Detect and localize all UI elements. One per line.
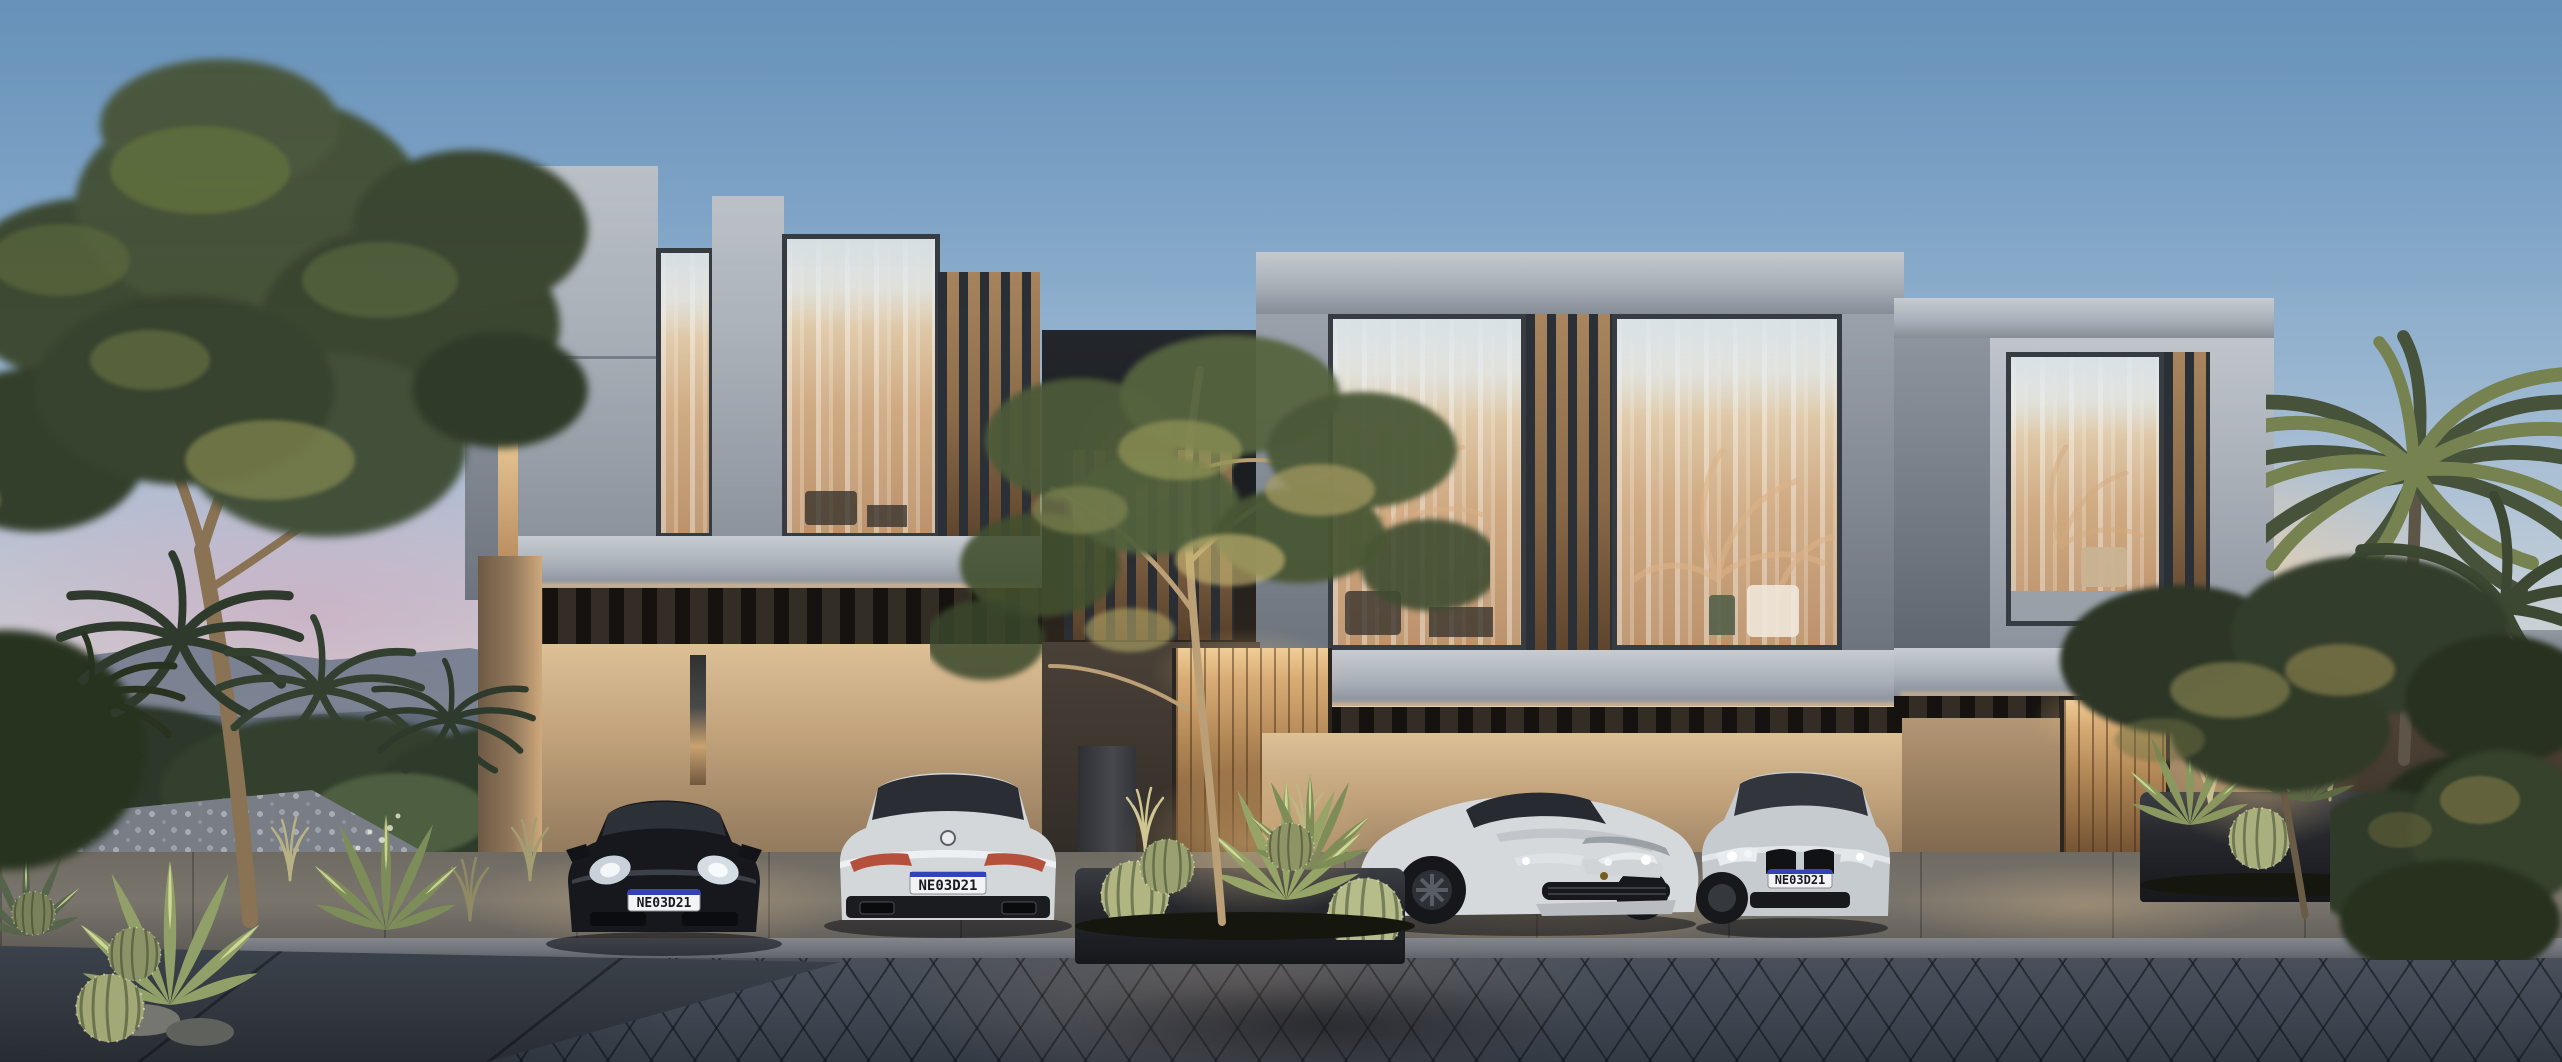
unit-b-window-2 [1612, 314, 1842, 650]
tree-foliage [930, 335, 1490, 680]
rock [166, 1018, 234, 1046]
window-plant-pot [1709, 595, 1735, 635]
headlight-lamp [1727, 851, 1737, 861]
unit-b-louvers [1526, 314, 1612, 650]
headlight-lamp [1641, 855, 1651, 865]
headlight-lamp [1604, 858, 1612, 866]
unit-b-roof-slab [1256, 252, 1904, 314]
exhaust-left [860, 902, 894, 914]
license-plate: NE03D21 [1768, 870, 1832, 888]
wheel-rim [1708, 884, 1736, 912]
svg-text:NE03D21: NE03D21 [1775, 873, 1826, 887]
lower-intake [1750, 892, 1850, 908]
unit-c-side-face [1894, 338, 1990, 650]
right-corner-bushes [2330, 680, 2562, 960]
window-furniture-silhouette [805, 491, 857, 525]
center-planter-tree [930, 310, 1490, 930]
ferrari-badge [1600, 872, 1608, 880]
bmw-silver-car-front: NE03D21 [1692, 740, 1894, 940]
unit-a-concrete-panel-2 [712, 196, 784, 538]
window-white-chair [1747, 585, 1799, 637]
architectural-render-scene: NE03D21 NE03D21 [0, 0, 2562, 1062]
unit-b-corner-post [1842, 314, 1900, 650]
front-intake-right [682, 912, 738, 926]
headlight-lamp [1856, 853, 1864, 861]
left-background-palms [20, 520, 540, 820]
front-grille [1542, 882, 1670, 900]
unit-a-large-window [782, 234, 940, 538]
svg-text:NE03D21: NE03D21 [637, 896, 692, 911]
unit-a-narrow-window [656, 248, 714, 538]
headlight-lamp [1744, 850, 1752, 858]
headlight-lamp [1522, 857, 1530, 865]
window-furniture-silhouette [867, 505, 907, 527]
unit-c-roof-slab [1894, 298, 2274, 338]
tree-shadow-on-road [1060, 975, 1580, 1062]
